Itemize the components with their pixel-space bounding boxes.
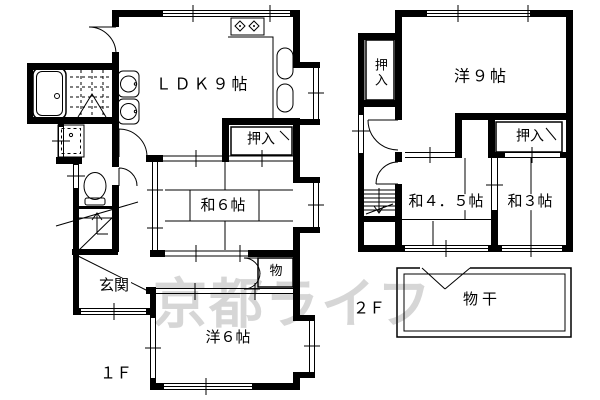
kitchen-stove-icon [231, 18, 264, 35]
bathtub-icon [33, 68, 66, 119]
room-label-washitsu3: 和３帖 [505, 194, 554, 210]
room-label-ldk: ＬＤＫ９帖 [153, 77, 252, 94]
shower-floor-tiles [70, 70, 112, 117]
floor1-label: １Ｆ [98, 366, 134, 383]
kyoto-life-watermark: 京都ライフ [153, 260, 433, 339]
room-label-oshiire-2f-right: 押入 [514, 130, 546, 145]
washbasin-icons [118, 71, 139, 124]
room-label-oshiire-1f: 押入 [245, 133, 277, 148]
stairs-up-icon [56, 202, 138, 252]
kitchen-sink-icon [277, 48, 293, 112]
room-label-genkan: 玄関 [97, 278, 131, 294]
stairs-down-icon [364, 188, 395, 214]
room-label-oshiire-2f-left: 押入 [370, 58, 388, 88]
floorplan-image: ＬＤＫ９帖 押入 和６帖 物 玄関 洋６帖 １Ｆ 押入 洋９帖 押入 和４．５帖… [0, 0, 600, 400]
room-label-yoshitsu9: 洋９帖 [452, 69, 510, 86]
room-label-washitsu6: 和６帖 [198, 198, 247, 214]
toilet-icon [84, 173, 106, 206]
room-label-washitsu45: 和４．５帖 [406, 194, 485, 210]
room-label-monohoshi: 物干 [461, 292, 503, 308]
